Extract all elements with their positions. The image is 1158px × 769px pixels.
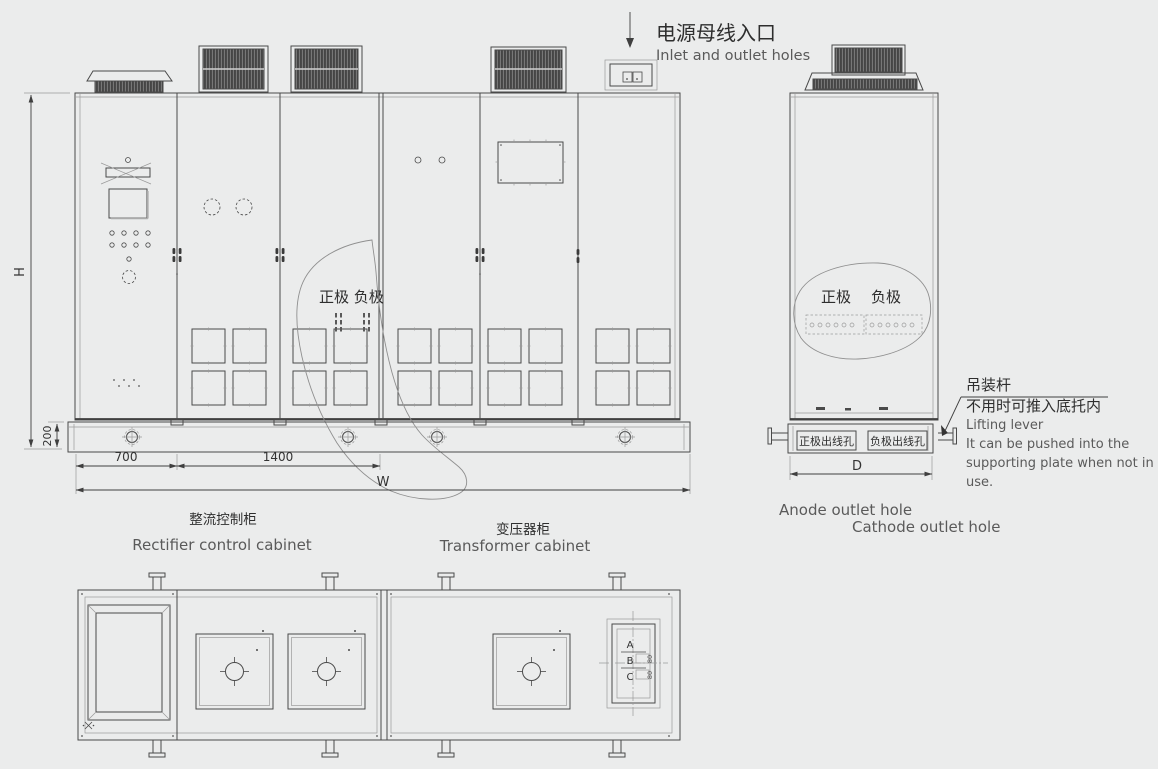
front-cabinet-outline [75, 93, 680, 420]
control-knob [123, 271, 136, 284]
cathode-outlet-hole-en: Cathode outlet hole [852, 518, 1000, 536]
door1-vent-dots [113, 379, 140, 387]
cathode-outlet-label: 负极出线孔 [870, 434, 925, 448]
plan-outline [78, 590, 680, 740]
bus-inlet-hole-detail [605, 60, 657, 90]
front-polarity-label: 正极 负极 [319, 288, 384, 306]
side-cathode-label: 负极 [871, 288, 901, 306]
lifting-lever-note-en-2: supporting plate when not in [966, 456, 1154, 471]
door4-hole [439, 157, 445, 163]
plan-view: A B C 80 80 [78, 573, 680, 757]
lifting-lever-label-zh: 吊装杆 [966, 376, 1011, 394]
roof-louver-vent-2 [291, 46, 362, 92]
roof-louver-vent-3 [491, 47, 566, 92]
dim-h-label: H [13, 267, 28, 277]
indicator-lights [110, 231, 150, 247]
front-view: 正极 负极 H [13, 12, 690, 555]
rectifier-cabinet-label-zh: 整流控制柜 [189, 512, 257, 528]
dim-1400-label: 1400 [263, 450, 294, 464]
rectifier-cabinet-label-en: Rectifier control cabinet [132, 536, 312, 554]
plan-corner-screws [81, 593, 670, 737]
dim-a-label: A [627, 640, 634, 651]
dim-d-label: D [852, 459, 862, 474]
front-revision-cloud [297, 240, 467, 499]
display-screen [109, 189, 147, 218]
lifting-lever-note-zh: 不用时可推入底托内 [966, 397, 1101, 415]
lifting-lever-note-en-3: use. [966, 475, 993, 490]
plan-fan-box-2 [288, 630, 365, 709]
plan-bus-inlet-opening: A B C 80 80 [599, 611, 668, 716]
dim-c-label: C [627, 672, 634, 683]
lifting-lever-label-en: Lifting lever [966, 418, 1044, 433]
bus-inlet-annotation: 电源母线入口 Inlet and outlet holes [656, 21, 810, 64]
plan-fan-box-1 [196, 630, 273, 709]
bus-inlet-label-zh: 电源母线入口 [656, 21, 776, 45]
bus-inlet-arrow [626, 12, 634, 48]
side-cabinet-outline [790, 93, 938, 420]
engineering-drawing: 正极 负极 H [0, 0, 1158, 769]
dim-b-label: B [627, 656, 634, 667]
transformer-cabinet-label-en: Transformer cabinet [439, 537, 591, 555]
plan-corner-mark [83, 722, 95, 729]
side-anode-label: 正极 [821, 288, 851, 306]
lifting-lever-annotation: 吊装杆 不用时可推入底托内 Lifting lever It can be pu… [966, 376, 1154, 490]
dim-700-label: 700 [115, 450, 138, 464]
side-revision-cloud [794, 263, 931, 359]
plan-hood-frame [88, 605, 170, 720]
roof-hood-vent [87, 71, 172, 92]
anode-outlet-label: 正极出线孔 [799, 434, 854, 448]
plan-fan-box-3 [493, 630, 570, 709]
roof-louver-vent-1 [199, 46, 268, 92]
drawing-canvas: 正极 负极 H [0, 0, 1158, 769]
side-dimension-d: D [790, 456, 932, 480]
door2-fan-openings [204, 199, 252, 215]
terminal-strips [806, 315, 922, 334]
side-roof-vent [805, 45, 923, 90]
front-base [68, 420, 690, 452]
dim-200-label: 200 [41, 426, 54, 447]
door5-access-panel [496, 140, 566, 186]
side-base: 正极出线孔 负极出线孔 [788, 424, 933, 453]
dim-w-label: W [377, 475, 390, 490]
bus-inlet-label-en: Inlet and outlet holes [656, 48, 810, 64]
anode-outlet-hole-en: Anode outlet hole [779, 501, 912, 519]
bottom-vent-grids [191, 328, 672, 407]
dim-c-value: 80 [646, 671, 654, 679]
lifting-lever-note-en-1: It can be pushed into the [966, 437, 1129, 452]
door4-hole [415, 157, 421, 163]
control-door-details [101, 158, 151, 387]
transformer-cabinet-label-zh: 变压器柜 [496, 522, 550, 538]
dim-b-value: 80 [646, 655, 654, 663]
